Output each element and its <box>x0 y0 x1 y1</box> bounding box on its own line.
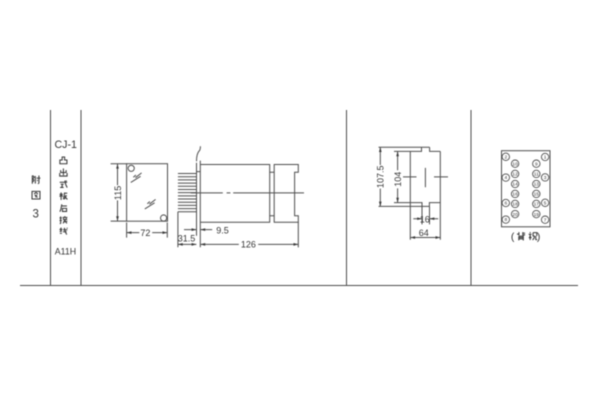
svg-text:115: 115 <box>113 186 123 200</box>
svg-text:14: 14 <box>512 182 518 188</box>
svg-text:64: 64 <box>419 228 429 238</box>
svg-text:CJ-1: CJ-1 <box>55 139 77 151</box>
svg-text:10: 10 <box>512 161 518 167</box>
svg-text:3: 3 <box>544 175 547 181</box>
svg-text:3: 3 <box>32 208 38 220</box>
svg-text:7: 7 <box>544 217 547 223</box>
svg-text:11: 11 <box>534 172 539 178</box>
svg-text:12: 12 <box>512 172 518 178</box>
svg-text:107.5: 107.5 <box>376 166 386 189</box>
svg-text:72: 72 <box>140 228 150 238</box>
svg-text:31.5: 31.5 <box>178 234 196 244</box>
svg-text:A11H: A11H <box>55 247 76 257</box>
svg-text:5: 5 <box>544 201 547 207</box>
svg-text:1: 1 <box>544 155 547 161</box>
svg-text:17: 17 <box>534 202 540 208</box>
svg-text:104: 104 <box>393 172 403 187</box>
svg-text:16: 16 <box>512 192 518 198</box>
svg-text:15: 15 <box>534 192 540 198</box>
svg-text:(: ( <box>511 231 515 243</box>
svg-text:20: 20 <box>512 212 518 218</box>
svg-text:9.5: 9.5 <box>216 225 229 235</box>
svg-text:18: 18 <box>512 202 518 208</box>
svg-text:9: 9 <box>535 161 538 167</box>
svg-text:13: 13 <box>534 182 540 188</box>
svg-text:19: 19 <box>534 212 540 218</box>
svg-text:8: 8 <box>504 217 507 223</box>
svg-text:126: 126 <box>241 239 256 249</box>
svg-text:4: 4 <box>504 175 507 181</box>
svg-text:16: 16 <box>420 215 430 225</box>
svg-text:6: 6 <box>504 201 507 207</box>
svg-text:2: 2 <box>504 155 507 161</box>
svg-text:): ) <box>537 231 541 243</box>
